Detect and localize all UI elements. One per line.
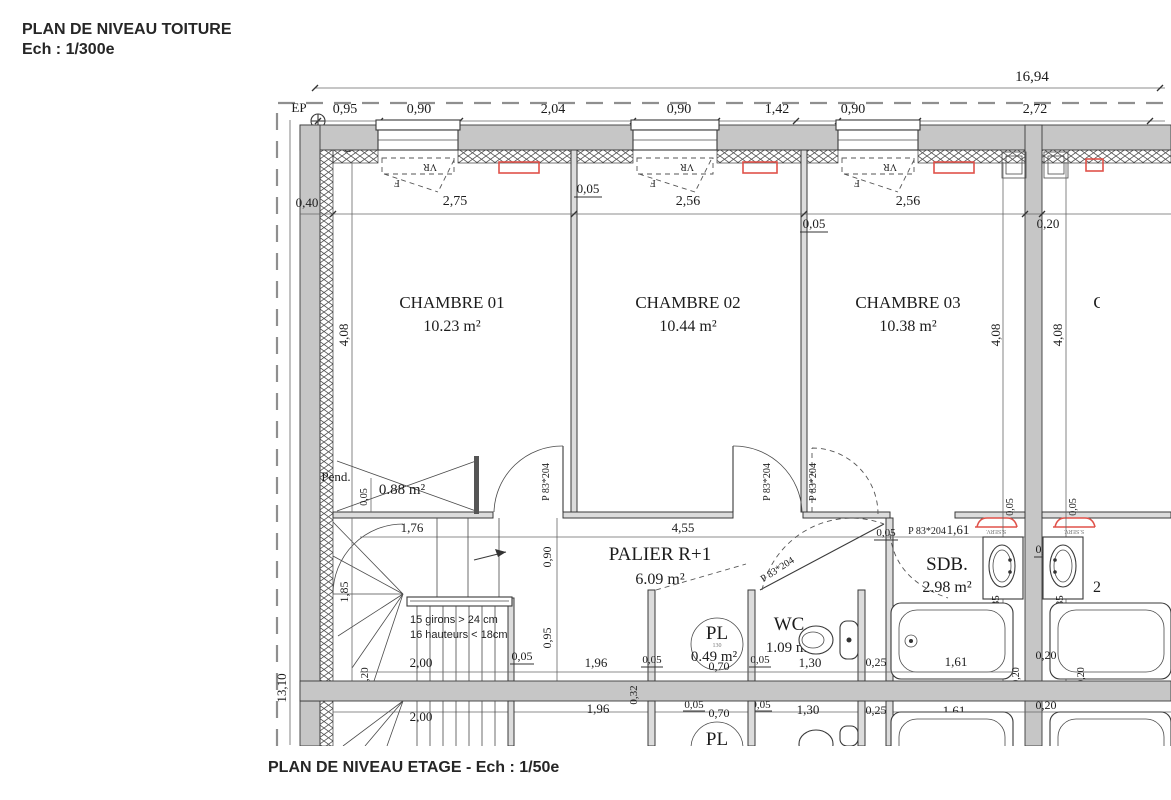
dim-label: 0,05 <box>642 654 662 666</box>
dim-label: 2,72 <box>1023 102 1048 117</box>
dim-label: 2,00 <box>410 709 433 724</box>
dim-label: 0,05 <box>1005 498 1016 516</box>
dim-label: 1,76 <box>401 520 424 535</box>
dim-label: 0,05 <box>684 699 704 711</box>
room-area-chambre3: 10.38 m² <box>879 318 936 335</box>
roof-plan-title: PLAN DE NIVEAU TOITURE <box>22 21 232 38</box>
window-chambre1: VR F <box>376 120 460 192</box>
sdb-room: 0,05 P 83*204 1,61 SDB. 2.98 m² 0,20 2 1… <box>874 522 1101 615</box>
dim-label: 4,08 <box>1050 324 1065 347</box>
room-label-chambre4-partial: C <box>1093 293 1104 312</box>
floor-plan-title: PLAN DE NIVEAU ETAGE - Ech : 1/50e <box>268 759 559 776</box>
wc-door-leaf <box>760 524 884 590</box>
dim-label: 0,90 <box>841 102 866 117</box>
door-tag: P 83*204 <box>908 526 946 537</box>
dim-label: 0,05 <box>1068 498 1079 516</box>
dim-label: 13,10 <box>274 673 289 702</box>
radiator <box>499 162 539 173</box>
dim-label: 0,95 <box>333 102 358 117</box>
dim-label: 0,90 <box>540 547 554 568</box>
toilet-bowl <box>799 626 833 654</box>
room-label-pl: PL <box>706 623 728 644</box>
dim-label: 1,30 <box>797 702 820 717</box>
door-tag: P 83*204 <box>808 463 819 501</box>
dim-label: 0,05 <box>577 181 600 196</box>
room-area-sdb-mirror-partial: 2 <box>1093 579 1101 596</box>
pente-label: Pend. <box>321 469 350 484</box>
dim-label: 2,04 <box>541 102 566 117</box>
room-area-palier: 6.09 m² <box>635 571 684 588</box>
roller-shutter-box <box>842 158 914 174</box>
door-tag: P 83*204 <box>541 463 552 501</box>
dim-label: 0,05 <box>750 654 770 666</box>
roof-plan-scale: Ech : 1/300e <box>22 41 115 58</box>
room-area-chambre2: 10.44 m² <box>659 318 716 335</box>
window-chambre2: VR F <box>631 120 719 192</box>
window-chambre3: VR F <box>836 120 920 192</box>
dim-label: 16,94 <box>1015 69 1049 85</box>
dim-label: 0,90 <box>667 102 692 117</box>
dim-label: 1,61 <box>945 654 968 669</box>
dim-label: 0,95 <box>540 628 554 649</box>
stair-note-1: 15 girons > 24 cm <box>410 614 498 626</box>
doors: P 83*204 P 83*204 P 83*204 <box>494 446 878 514</box>
dim-label: 0,20 <box>1036 648 1057 662</box>
dim-label: 0,32 <box>628 685 640 704</box>
radiator <box>934 162 974 173</box>
dim-label: 0,05 <box>876 527 896 539</box>
dim-label: 0,70 <box>709 659 730 673</box>
dim-label: 0,05 <box>803 216 826 231</box>
stair-handrail <box>407 597 512 606</box>
room-label-chambre1: CHAMBRE 01 <box>399 293 504 312</box>
room-label-sdb: SDB. <box>926 554 968 575</box>
room-area-chambre1: 10.23 m² <box>423 318 480 335</box>
room-label-wc: WC <box>774 614 805 635</box>
dim-label: 1,96 <box>585 655 608 670</box>
ep-label: EP <box>291 100 306 115</box>
towel-radiator-tag: S.SERV. <box>1063 528 1084 534</box>
roller-shutter-box <box>382 158 454 174</box>
dim-label: 1,61 <box>947 522 970 537</box>
floor-plan-page: PLAN DE NIVEAU TOITURE Ech : 1/300e PLAN… <box>0 0 1171 800</box>
dim-label: 4,08 <box>988 324 1003 347</box>
bathtub <box>1050 603 1171 679</box>
dim-label: 0,90 <box>407 102 432 117</box>
dim-label: 2,56 <box>676 194 701 209</box>
dim-label: 0,05 <box>512 649 533 663</box>
pente-area: 0.88 m² <box>379 482 426 498</box>
dim-label: 0,25 <box>866 655 887 669</box>
dim-label: 1,85 <box>337 582 351 603</box>
towel-radiator <box>975 518 1017 527</box>
sous-pente: Pend. 0.88 m² 0,05 <box>321 456 479 514</box>
dim-label: 0,20 <box>1037 216 1060 231</box>
room-area-sdb: 2.98 m² <box>922 579 971 596</box>
dim-label: 4,08 <box>336 324 351 347</box>
vr-tag: VR <box>423 161 437 172</box>
stair-note-2: 16 hauteurs < 18cm <box>410 629 508 641</box>
floor-plan-drawing: PLAN DE NIVEAU TOITURE Ech : 1/300e PLAN… <box>0 0 1171 800</box>
vr-tag: VR <box>883 161 897 172</box>
room-label-palier: PALIER R+1 <box>609 544 711 565</box>
dim-label: 1,30 <box>799 655 822 670</box>
radiator <box>743 162 777 173</box>
dim-label: 4,55 <box>672 520 695 535</box>
f-tag: F <box>854 177 860 188</box>
vr-tag: VR <box>680 161 694 172</box>
towel-radiator <box>1053 518 1095 527</box>
door-tag: P 83*204 <box>762 463 773 501</box>
dim-label: 0,05 <box>359 488 370 506</box>
pente-edge <box>474 456 479 514</box>
dim-label: 1,42 <box>765 102 790 117</box>
dim-label: 2,56 <box>896 194 921 209</box>
dim-label: 0,25 <box>866 703 887 717</box>
roller-shutter-box <box>637 158 713 174</box>
room-label-chambre3: CHAMBRE 03 <box>855 293 960 312</box>
dim-label: 0,40 <box>296 195 319 210</box>
dim-label: 2,00 <box>410 655 433 670</box>
room-label-pl-mirror: PL <box>706 729 728 750</box>
f-tag: F <box>650 177 656 188</box>
room-label-chambre2: CHAMBRE 02 <box>635 293 740 312</box>
dim-label: 1,96 <box>587 701 610 716</box>
dim-label: 0,20 <box>1036 698 1057 712</box>
dim-label: 0,70 <box>709 706 730 720</box>
f-tag: F <box>394 177 400 188</box>
dim-label: 2,75 <box>443 194 468 209</box>
